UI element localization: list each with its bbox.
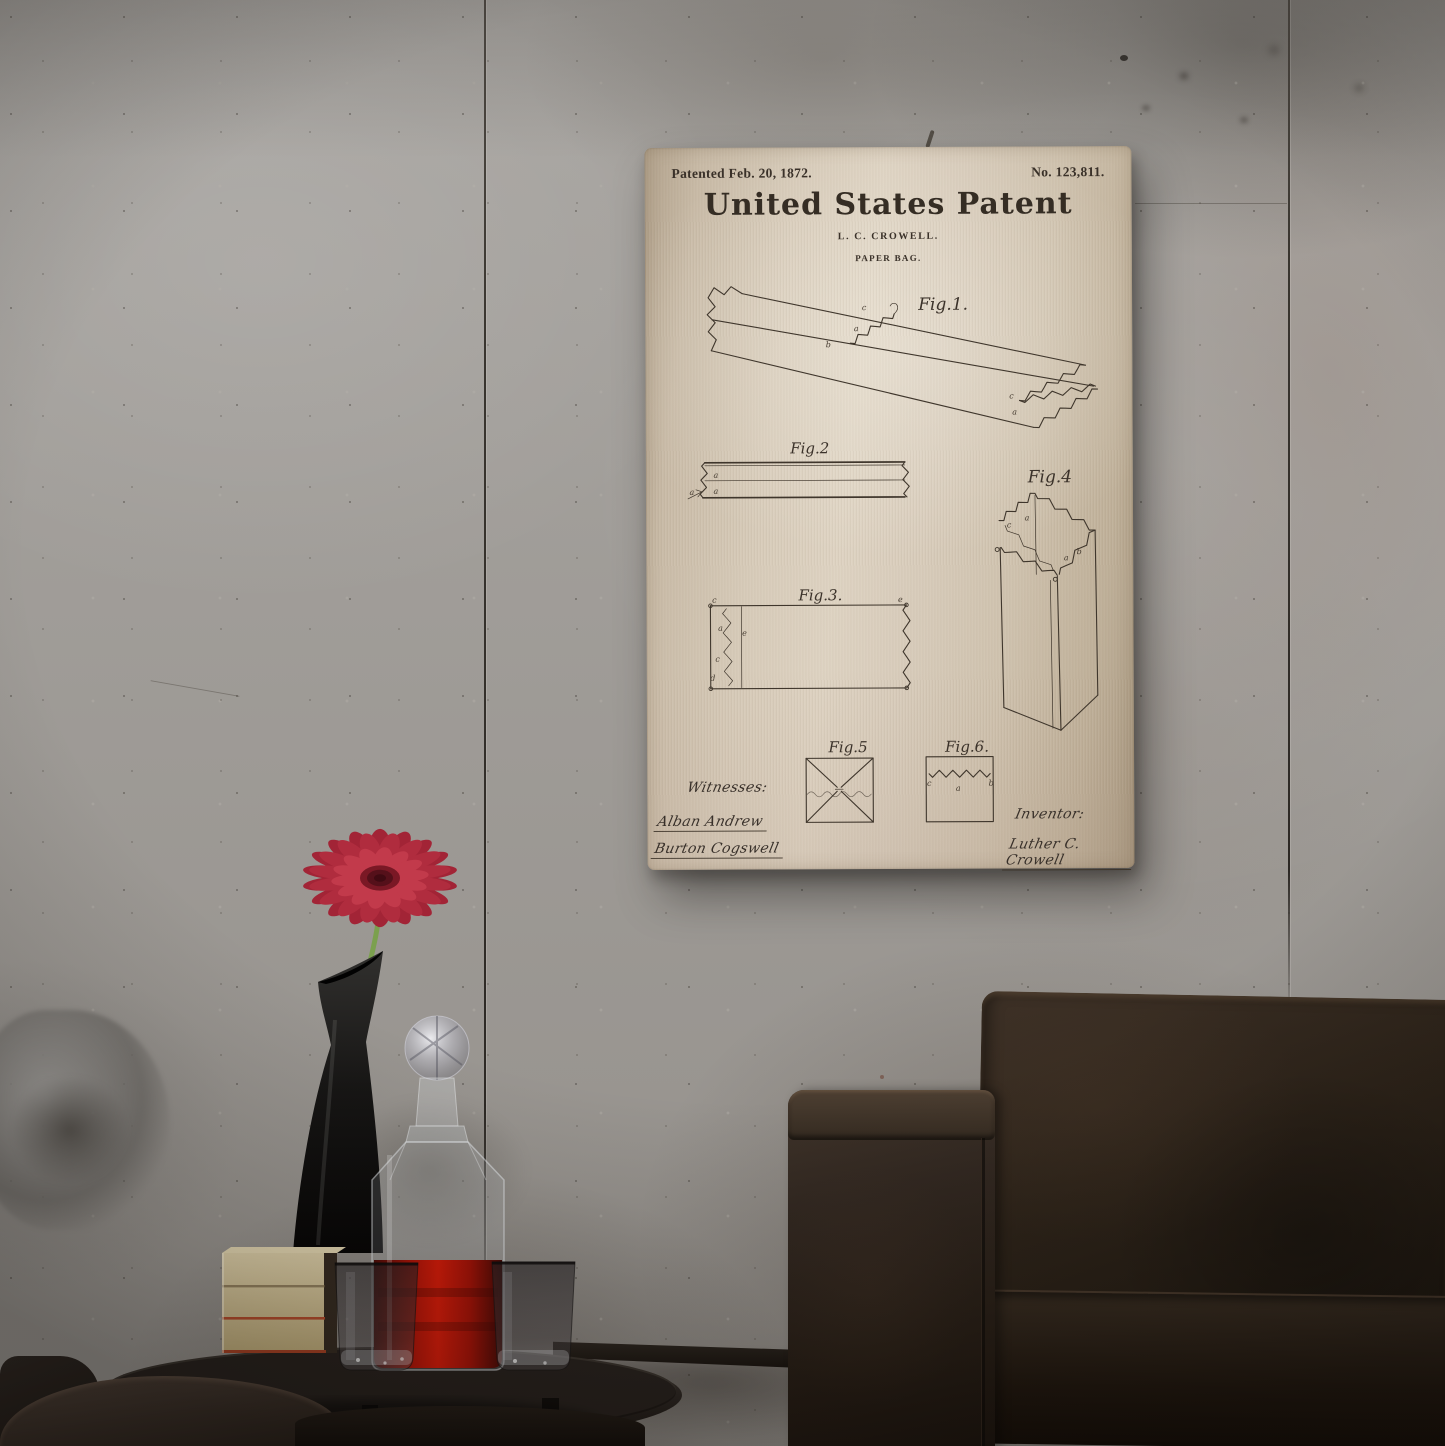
svg-text:Fig.6.: Fig.6. bbox=[944, 738, 989, 756]
svg-text:b: b bbox=[989, 779, 994, 788]
witnesses-label: Witnesses: bbox=[686, 780, 769, 796]
armrest-top-face bbox=[788, 1090, 995, 1140]
wall-seam-right bbox=[1288, 0, 1290, 1025]
svg-text:a: a bbox=[854, 324, 859, 333]
patent-figures-drawing: Fig.1. c a b c a Fig.2 bbox=[644, 146, 1134, 870]
figure-1-paper-tube: Fig.1. c a b c a bbox=[707, 285, 1098, 429]
svg-text:e: e bbox=[742, 629, 747, 638]
svg-text:b: b bbox=[1077, 547, 1082, 556]
svg-text:a: a bbox=[714, 487, 719, 496]
svg-text:c: c bbox=[1009, 391, 1014, 400]
tumbler-right bbox=[492, 1262, 575, 1370]
svg-text:c: c bbox=[862, 303, 867, 312]
inventor-label: Inventor: bbox=[1014, 806, 1086, 822]
svg-text:c: c bbox=[1007, 520, 1012, 529]
svg-text:e: e bbox=[898, 595, 903, 604]
armchair-backrest bbox=[976, 991, 1445, 1318]
inventor-signature: Luther C. Crowell bbox=[1002, 836, 1138, 871]
figure-2-flat-strip: Fig.2 a a a bbox=[688, 439, 910, 499]
wall-scratch bbox=[1135, 203, 1287, 204]
svg-text:Fig.3.: Fig.3. bbox=[797, 586, 842, 604]
svg-text:c: c bbox=[927, 779, 932, 788]
svg-text:a: a bbox=[1025, 513, 1030, 522]
svg-text:a: a bbox=[690, 488, 695, 497]
svg-text:Fig.4: Fig.4 bbox=[1027, 467, 1072, 487]
svg-text:d: d bbox=[710, 674, 715, 683]
svg-text:Fig.1.: Fig.1. bbox=[917, 295, 968, 315]
svg-text:a: a bbox=[713, 471, 718, 480]
tumbler-left bbox=[335, 1263, 418, 1370]
svg-text:a: a bbox=[718, 624, 723, 633]
red-gerbera-flower bbox=[301, 829, 458, 927]
book-stack bbox=[222, 1247, 346, 1353]
wall-rust-specks bbox=[880, 1075, 884, 1079]
svg-text:Fig.2: Fig.2 bbox=[789, 439, 829, 457]
wall-stain-top-right bbox=[1120, 55, 1128, 61]
svg-text:c: c bbox=[715, 655, 720, 664]
armrest-seam bbox=[981, 1138, 985, 1446]
armchair-armrest bbox=[788, 1090, 995, 1446]
figure-5-envelope-fold: Fig.5 bbox=[806, 738, 873, 822]
still-life-group bbox=[90, 820, 700, 1446]
figure-3-blank: Fig.3. c a e c d e bbox=[709, 586, 911, 691]
svg-text:Fig.5: Fig.5 bbox=[827, 738, 867, 756]
figure-6-seamed-square: Fig.6. c a b bbox=[926, 738, 994, 822]
svg-text:a: a bbox=[1064, 553, 1069, 562]
floor-shadow-mound bbox=[295, 1406, 645, 1446]
black-vase bbox=[293, 951, 383, 1253]
figure-4-standing-bag: Fig.4 c a a b bbox=[995, 467, 1098, 730]
room-scene: Patented Feb. 20, 1872. No. 123,811. Uni… bbox=[0, 0, 1445, 1446]
svg-text:c: c bbox=[712, 596, 717, 605]
patent-print-artwork: Patented Feb. 20, 1872. No. 123,811. Uni… bbox=[644, 146, 1134, 870]
svg-text:b: b bbox=[826, 340, 831, 349]
svg-text:a: a bbox=[1012, 407, 1017, 416]
svg-text:a: a bbox=[956, 784, 961, 793]
armchair-seat bbox=[980, 1289, 1445, 1446]
